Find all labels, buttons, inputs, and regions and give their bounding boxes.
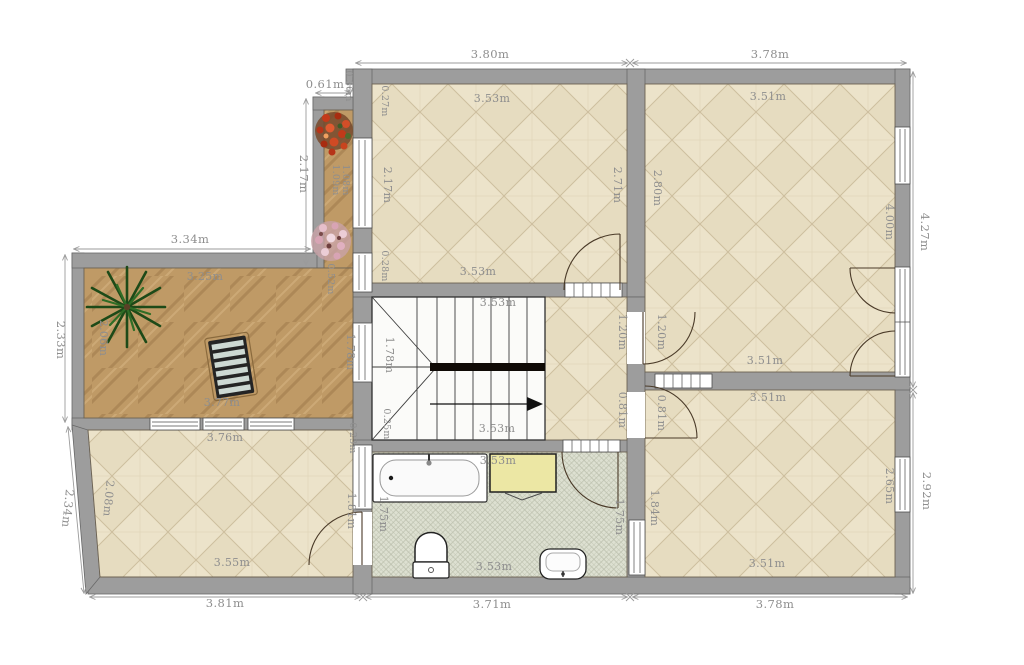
window-french-door-sill (895, 267, 910, 377)
room-bottom-left-h-right: 1.81m (345, 493, 358, 530)
window-terrace-livingroom-1 (150, 418, 200, 430)
hall-door-bottom-a: 0.81m (616, 392, 629, 429)
staircase (372, 297, 545, 440)
wall-bottom (88, 577, 910, 594)
toilet (413, 533, 449, 579)
room-bottom-right-floor (645, 390, 895, 577)
window-right-upper (895, 127, 910, 184)
window-balcony-upper (353, 138, 372, 228)
room-bottom-left-off: 0.23m (347, 422, 358, 453)
stairs-off: 0.25m (381, 408, 392, 439)
bathtub-drain-icon (389, 476, 393, 480)
terrace-w-top: 3.25m (187, 270, 224, 283)
room-top-mid-off-top: 0.27m (379, 85, 390, 116)
room-top-right-w-top: 3.51m (750, 90, 787, 103)
dim-right-a: 4.27m (918, 213, 932, 252)
wall-terrace-top (72, 253, 317, 268)
window-balcony-lower (353, 253, 372, 292)
room-bottom-left-floor (88, 430, 353, 577)
stairs-w-bottom: 3.53m (479, 422, 516, 435)
hall-door-top-a: 1.20m (616, 314, 629, 351)
room-bottom-left-w-top: 3.76m (207, 431, 244, 444)
sink (540, 549, 586, 579)
terrace-w-bottom: 3.77m (204, 396, 241, 409)
window-terrace-livingroom-3 (248, 418, 294, 430)
hall-door-bottom-b: 0.81m (655, 395, 668, 432)
bathroom-w-top: 3.53m (480, 454, 517, 467)
room-top-right-h-right: 4.00m (883, 204, 896, 241)
dim-terrace-top: 3.34m (171, 232, 210, 246)
room-top-right-floor (645, 84, 895, 372)
dim-balcony-side: 2.17m (297, 155, 311, 194)
hall-door-top-b: 1.20m (655, 314, 668, 351)
bathroom-h-left: 1.75m (377, 496, 390, 533)
room-top-mid-h-right: 2.71m (611, 167, 624, 204)
dim-balcony-top: 0.61m (306, 77, 345, 91)
wall-terrace-left (72, 253, 84, 425)
door-sill-bathroom (563, 440, 620, 452)
room-top-mid-h-left: 2.17m (381, 167, 394, 204)
floor-plan-canvas: 0.61m 0.36m 3.80m 3.78m 2.17m 3.34m 2.33… (0, 0, 1024, 665)
dim-bottom-a: 3.81m (206, 596, 245, 610)
stair-break-line (430, 363, 545, 371)
terrace-notch: 0.52m (325, 263, 336, 294)
window-topright-room-bottom (655, 374, 712, 388)
room-top-mid-floor (372, 84, 627, 283)
dim-balcony-depth: 0.36m (343, 70, 354, 101)
bathroom-w-bottom: 3.53m (476, 560, 513, 573)
window-terrace-livingroom-2 (203, 418, 244, 430)
room-bottom-right-h-left: 1.84m (648, 490, 661, 527)
room-top-right-h-left: 2.80m (651, 170, 664, 207)
terrace-h-right: 1.78m (344, 334, 357, 371)
wall-between-top-rooms (627, 69, 645, 297)
room-top-mid-w-top: 3.53m (474, 92, 511, 105)
window-right-lower (895, 457, 910, 512)
room-top-mid-off-bottom: 0.28m (379, 250, 390, 281)
balcony-len-b: 1.08m (340, 164, 351, 195)
floor-plan-svg: 0.61m 0.36m 3.80m 3.78m 2.17m 3.34m 2.33… (0, 0, 1024, 665)
room-bottom-right-w-top: 3.51m (750, 391, 787, 404)
hall-landing-floor (545, 297, 627, 440)
dim-right-b: 2.92m (920, 472, 934, 511)
pink-flower-box (311, 221, 351, 261)
window-bathroom-bottomright (629, 520, 645, 575)
dim-top-a: 3.80m (471, 47, 510, 61)
room-bottom-right-w-bottom: 3.51m (749, 557, 786, 570)
room-top-mid-w-bottom: 3.53m (460, 265, 497, 278)
room-top-right-w-bottom: 3.51m (747, 354, 784, 367)
balcony-len-a: 1.09m (330, 164, 341, 195)
dim-top-b: 3.78m (751, 47, 790, 61)
stairs-w-top: 3.53m (480, 296, 517, 309)
dim-bottom-b: 3.71m (473, 597, 512, 611)
dim-terrace-side: 2.33m (54, 321, 68, 360)
door-sill-top-mid-room (565, 283, 622, 297)
bathroom-h-right: 1.75m (613, 499, 626, 536)
room-bottom-left-w-bottom: 3.55m (214, 556, 251, 569)
sun-lounger (204, 332, 257, 401)
terrace-h-left: 2.06m (97, 320, 110, 357)
room-bottom-right-h-right: 2.65m (883, 468, 896, 505)
dim-bottom-c: 3.78m (756, 597, 795, 611)
stairs-h-left: 1.78m (383, 337, 396, 374)
